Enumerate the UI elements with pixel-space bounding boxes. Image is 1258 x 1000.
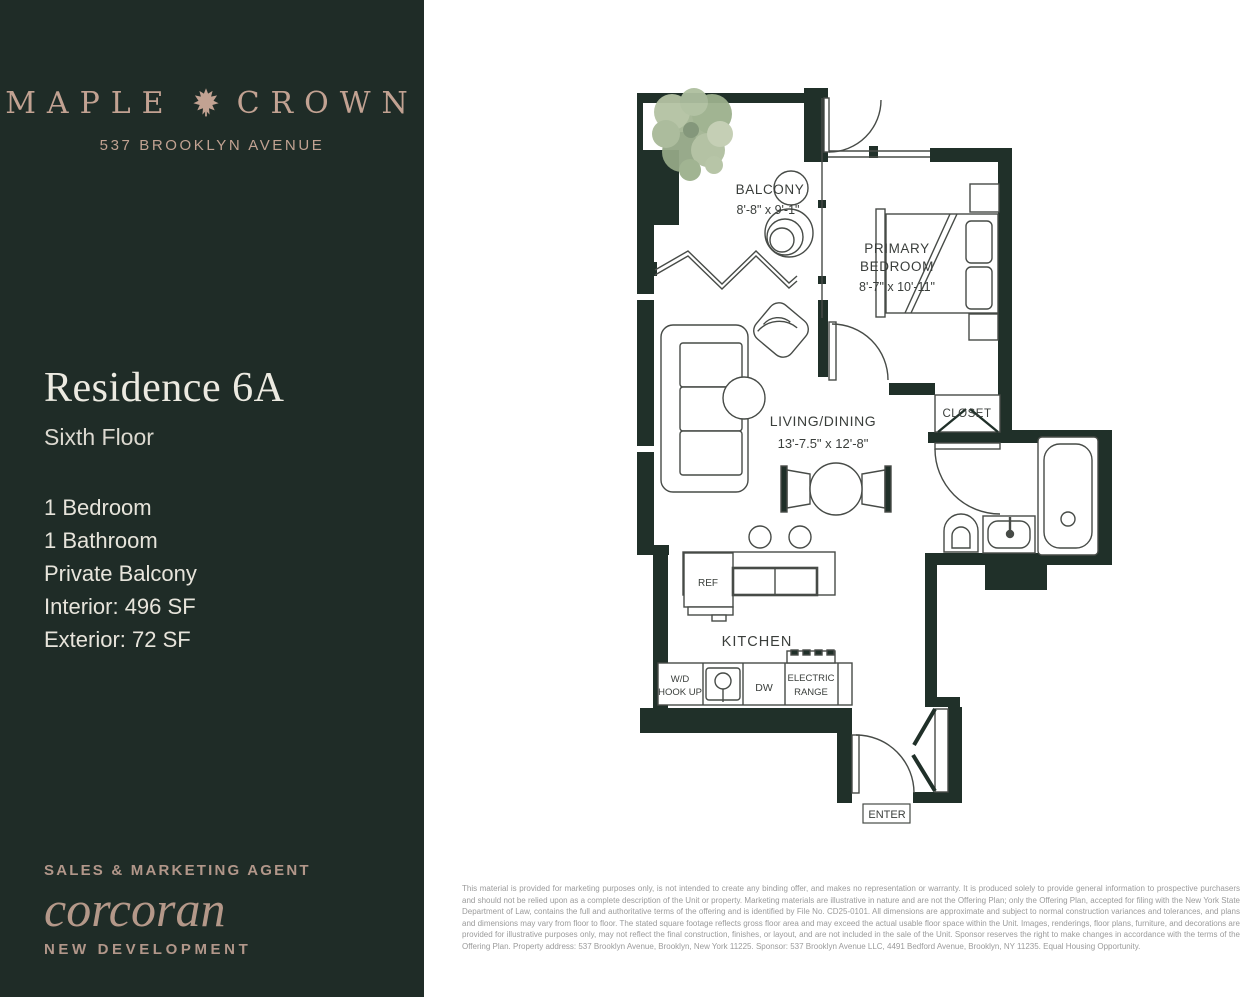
wall-bottom — [640, 708, 852, 733]
sink-vanity — [983, 516, 1035, 553]
wd-label-2: HOOK UP — [658, 687, 702, 698]
closet-label: CLOSET — [942, 408, 991, 420]
kitchen-faucet — [715, 673, 731, 689]
wall-entry-closet-top — [925, 697, 960, 707]
nightstand-bottom — [969, 314, 998, 340]
feature-list: 1 Bedroom 1 Bathroom Private Balcony Int… — [44, 491, 284, 656]
entry-marker: ENTER — [863, 804, 910, 823]
balcony-door-leaf — [824, 98, 829, 152]
wall-entry-left — [925, 565, 937, 707]
balcony-dims: 8'-8" x 9'-1" — [737, 203, 800, 217]
building-address: 537 BROOKLYN AVENUE — [0, 137, 424, 154]
wd-label-1: W/D — [671, 674, 690, 685]
entry-door-leaf — [852, 735, 859, 793]
bathtub — [1038, 437, 1098, 555]
dining-set — [781, 463, 891, 515]
wall-entry-west — [837, 730, 852, 803]
feature-balcony: Private Balcony — [44, 557, 284, 590]
feature-bedrooms: 1 Bedroom — [44, 491, 284, 524]
coffee-table — [723, 377, 765, 419]
stool-2 — [789, 526, 811, 548]
nightstand-top — [970, 184, 999, 212]
bedroom-dims: 8'-7" x 10'-11" — [859, 280, 935, 294]
dining-chair-right-back — [885, 466, 891, 512]
window-break-2 — [635, 446, 656, 452]
wall-bedroom-sw — [818, 300, 828, 377]
bedroom-door-swing — [832, 324, 888, 380]
bedroom-label-1: PRIMARY — [864, 241, 929, 256]
logo-word-crown: CROWN — [237, 86, 419, 121]
living-label: LIVING/DINING — [770, 413, 877, 429]
armchair — [749, 298, 813, 361]
corcoran-logo: corcoran — [44, 881, 311, 937]
wall-exterior-step — [985, 565, 1047, 590]
residence-info: Residence 6A Sixth Floor 1 Bedroom 1 Bat… — [44, 364, 284, 656]
dining-chair-left — [787, 470, 810, 508]
range-label-1: ELECTRIC — [788, 673, 835, 684]
entry-closet-pivot-doors — [913, 709, 935, 791]
feature-interior-sf: Interior: 496 SF — [44, 590, 284, 623]
sales-agent-block: SALES & MARKETING AGENT corcoran NEW DEV… — [44, 862, 311, 958]
kitchen-label: KITCHEN — [722, 634, 793, 650]
enter-label: ENTER — [868, 809, 905, 821]
living-dims: 13'-7.5" x 12'-8" — [778, 436, 869, 451]
dining-chair-left-back — [781, 466, 787, 512]
wall-entry-closet-bottom — [913, 792, 962, 803]
entry-door-swing — [856, 735, 914, 793]
balcony-door-swing — [829, 100, 881, 152]
stool-1 — [749, 526, 771, 548]
wall-bath-east — [1098, 430, 1112, 565]
pillow-1 — [966, 221, 992, 263]
accordion-door-zigzag-2 — [655, 256, 797, 289]
agent-label: SALES & MARKETING AGENT — [44, 862, 311, 879]
bathroom-door-swing — [935, 449, 1000, 514]
building-logo: MAPLE CROWN 537 BROOKLYN AVENUE — [0, 86, 424, 154]
window-mullion-tick — [869, 146, 878, 158]
wall-balcony-parapet — [637, 93, 643, 153]
dining-table — [810, 463, 862, 515]
bedroom-door-leaf — [829, 322, 836, 380]
floor-plan: BALCONY 8'-8" x 9'-1" PRIMARY BEDROOM 8'… — [620, 80, 1120, 832]
window-break-1 — [635, 294, 656, 300]
dining-chair-right — [862, 470, 885, 508]
ref-label: REF — [698, 578, 718, 589]
agent-division: NEW DEVELOPMENT — [44, 941, 311, 958]
feature-bathrooms: 1 Bathroom — [44, 524, 284, 557]
residence-title: Residence 6A — [44, 364, 284, 412]
residence-floor: Sixth Floor — [44, 424, 284, 451]
bathroom-door-leaf — [935, 443, 1000, 449]
brand-sidebar: MAPLE CROWN 537 BROOKLYN AVENUE Residenc… — [0, 0, 424, 997]
wall-closet-bottom — [928, 432, 1003, 443]
bedroom-label-2: BEDROOM — [860, 259, 934, 274]
maple-leaf-icon — [191, 87, 221, 117]
logo-word-maple: MAPLE — [5, 86, 174, 121]
legal-disclaimer: This material is provided for marketing … — [462, 883, 1240, 953]
wall-entry-closet-right — [948, 707, 962, 803]
entry-closet-interior — [935, 709, 948, 792]
toilet — [944, 514, 978, 552]
range-label-2: RANGE — [794, 687, 828, 698]
pillow-2 — [966, 267, 992, 309]
dw-label: DW — [755, 682, 773, 694]
balcony-label: BALCONY — [736, 182, 805, 197]
wall-hall — [889, 383, 935, 395]
feature-exterior-sf: Exterior: 72 SF — [44, 623, 284, 656]
accordion-door-zigzag — [655, 251, 797, 284]
